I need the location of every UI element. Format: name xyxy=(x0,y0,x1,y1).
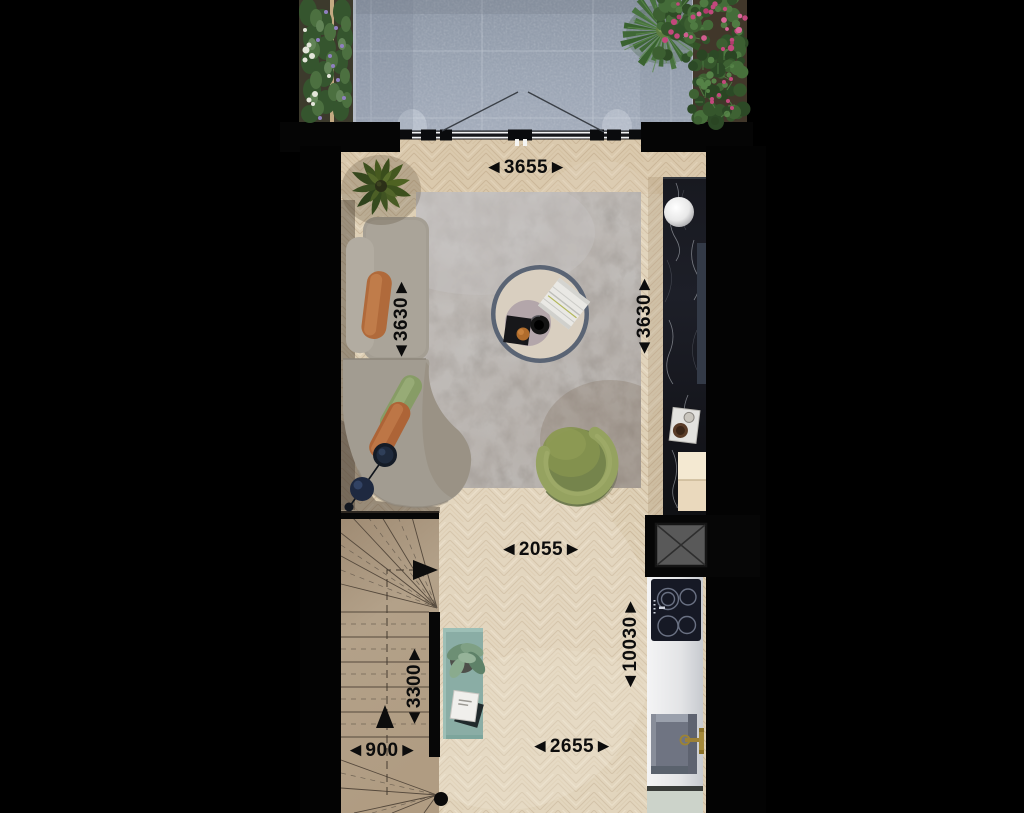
svg-text:◄2055►: ◄2055► xyxy=(500,539,583,560)
svg-text:◄3655►: ◄3655► xyxy=(485,157,568,178)
svg-text:◄3300►: ◄3300► xyxy=(404,645,425,728)
svg-text:◄10030►: ◄10030► xyxy=(620,597,641,691)
svg-text:◄2655►: ◄2655► xyxy=(531,736,614,757)
svg-text:◄900►: ◄900► xyxy=(346,740,418,761)
svg-text:◄3630►: ◄3630► xyxy=(391,278,412,361)
svg-text:◄3630►: ◄3630► xyxy=(634,275,655,358)
